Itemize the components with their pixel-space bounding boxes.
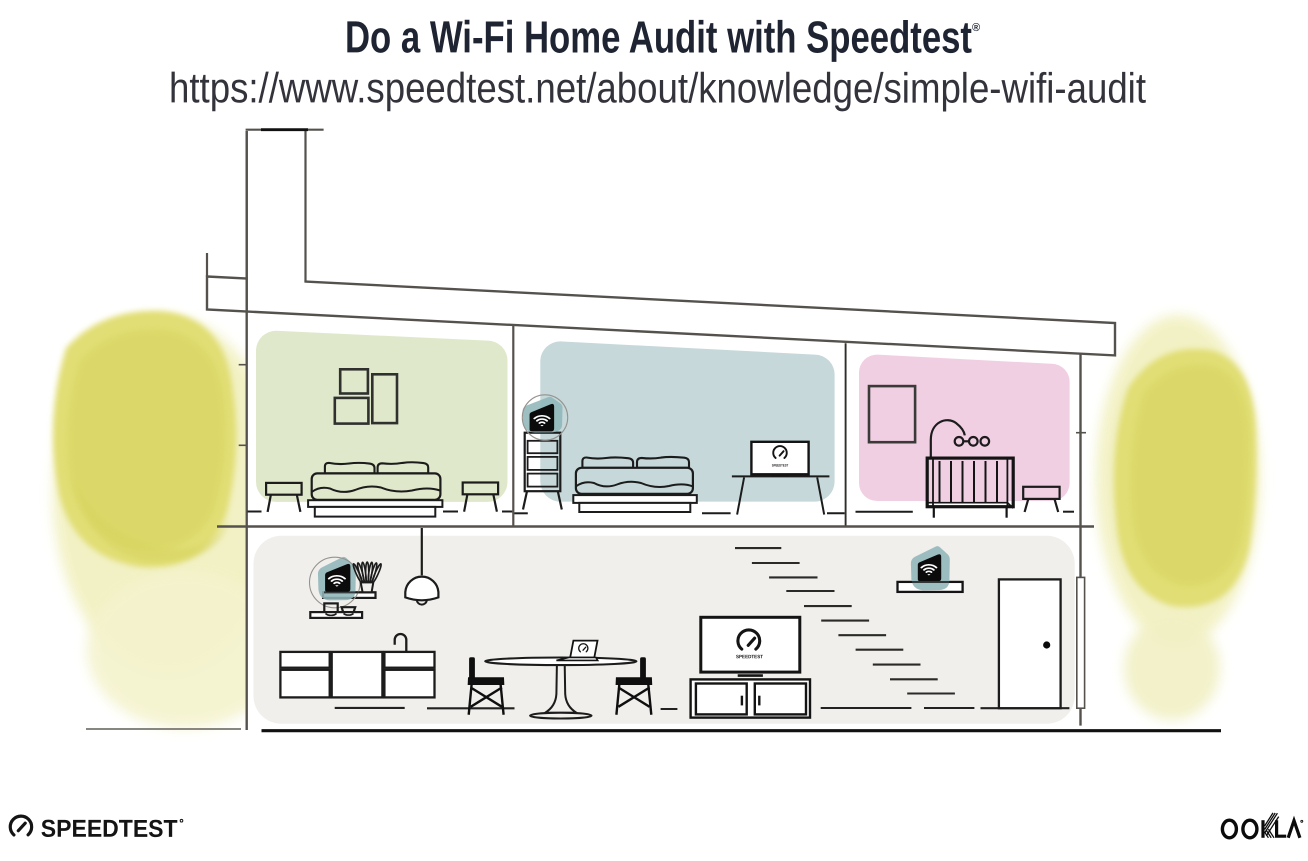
svg-text:SPEEDTEST: SPEEDTEST	[41, 816, 178, 843]
svg-text:Do a Wi-Fi Home Audit with Spe: Do a Wi-Fi Home Audit with Speedtest	[345, 11, 972, 62]
svg-text:https://www.speedtest.net/abou: https://www.speedtest.net/about/knowledg…	[169, 65, 1146, 112]
svg-text:SPEEDTEST: SPEEDTEST	[772, 463, 789, 467]
svg-text:®: ®	[972, 22, 980, 34]
svg-text:SPEEDTEST: SPEEDTEST	[736, 654, 763, 660]
